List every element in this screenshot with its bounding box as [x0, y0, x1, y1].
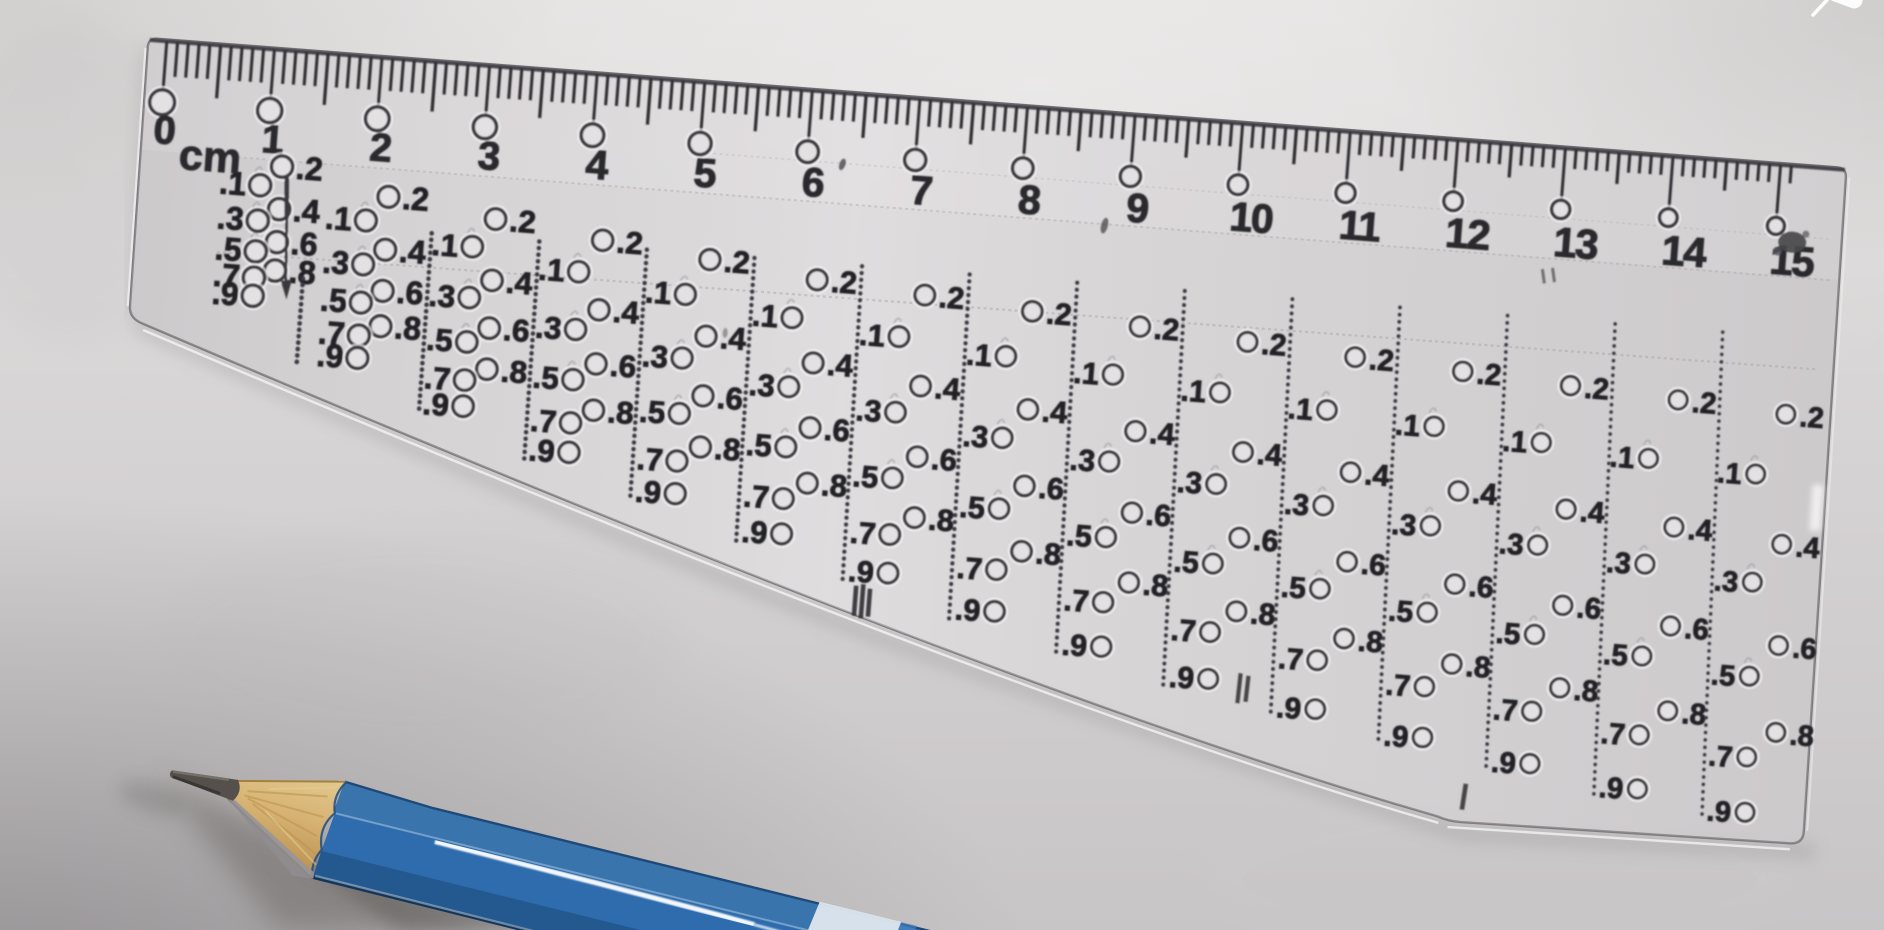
svg-text:.9: .9 — [315, 337, 344, 375]
svg-text:.5: .5 — [1280, 571, 1307, 606]
svg-text:7: 7 — [908, 167, 933, 214]
svg-text:.1: .1 — [1180, 374, 1208, 409]
svg-text:.1: .1 — [537, 251, 566, 289]
svg-text:.5: .5 — [745, 427, 774, 464]
svg-text:.6: .6 — [716, 380, 745, 417]
svg-text:.3: .3 — [428, 277, 457, 315]
svg-text:.7: .7 — [1170, 614, 1198, 649]
svg-text:.5: .5 — [1602, 638, 1629, 673]
svg-text:.9: .9 — [211, 275, 241, 313]
svg-text:.9: .9 — [1168, 661, 1196, 696]
svg-text:.2: .2 — [615, 223, 644, 261]
svg-text:.3: .3 — [534, 308, 563, 346]
svg-text:.4: .4 — [1686, 513, 1714, 548]
svg-text:.4: .4 — [1471, 477, 1499, 512]
svg-text:13: 13 — [1552, 218, 1599, 268]
svg-text:.8: .8 — [393, 309, 422, 347]
svg-text:.3: .3 — [1283, 488, 1310, 523]
svg-text:.6: .6 — [1145, 498, 1173, 534]
svg-text:.6: .6 — [823, 412, 852, 449]
svg-text:.4: .4 — [933, 370, 962, 407]
svg-text:.3: .3 — [1390, 508, 1417, 543]
svg-text:.5: .5 — [1387, 594, 1414, 629]
svg-text:.1: .1 — [431, 226, 460, 264]
svg-text:14: 14 — [1660, 226, 1709, 276]
svg-text:.6: .6 — [609, 347, 638, 385]
svg-text:.1: .1 — [324, 199, 353, 237]
svg-text:3: 3 — [476, 134, 500, 179]
svg-text:.7: .7 — [1492, 693, 1519, 728]
svg-text:.1: .1 — [1394, 408, 1421, 443]
svg-text:9: 9 — [1125, 184, 1150, 232]
svg-text:.4: .4 — [1040, 394, 1068, 431]
svg-text:.8: .8 — [1464, 650, 1491, 685]
svg-text:.8: .8 — [1034, 535, 1062, 572]
svg-text:.6: .6 — [930, 441, 958, 478]
svg-text:.2: .2 — [1798, 401, 1825, 435]
svg-text:10: 10 — [1228, 193, 1275, 242]
svg-text:.5: .5 — [425, 321, 454, 359]
svg-text:.4: .4 — [612, 293, 641, 331]
svg-text:.9: .9 — [1598, 771, 1625, 806]
svg-text:.4: .4 — [1363, 458, 1391, 493]
svg-text:.9: .9 — [1061, 628, 1089, 664]
svg-text:.8: .8 — [499, 352, 528, 390]
svg-text:0: 0 — [152, 108, 176, 153]
svg-text:.3: .3 — [1068, 443, 1096, 479]
svg-text:.7: .7 — [849, 515, 877, 552]
svg-text:.7: .7 — [1277, 642, 1304, 677]
svg-text:.6: .6 — [395, 274, 424, 312]
svg-text:.4: .4 — [719, 320, 748, 357]
svg-text:.8: .8 — [1141, 568, 1169, 604]
svg-text:.6: .6 — [1360, 548, 1387, 583]
svg-text:.1: .1 — [1716, 457, 1743, 491]
svg-text:.9: .9 — [1382, 719, 1409, 754]
svg-text:.2: .2 — [1583, 372, 1610, 407]
svg-text:.4: .4 — [398, 233, 428, 271]
svg-text:.6: .6 — [1037, 470, 1065, 507]
svg-text:.2: .2 — [1691, 386, 1718, 421]
svg-text:.1: .1 — [644, 274, 673, 311]
svg-text:.8: .8 — [1680, 697, 1707, 732]
svg-text:.3: .3 — [748, 367, 777, 404]
svg-text:.9: .9 — [1706, 795, 1733, 829]
svg-text:.4: .4 — [1148, 416, 1176, 452]
svg-text:.6: .6 — [1683, 612, 1710, 647]
svg-text:.4: .4 — [292, 192, 322, 230]
svg-text:.9: .9 — [740, 514, 769, 551]
svg-text:.2: .2 — [723, 244, 752, 281]
svg-text:.5: .5 — [1495, 617, 1522, 652]
svg-text:.3: .3 — [321, 243, 350, 281]
svg-text:.3: .3 — [1498, 527, 1525, 562]
svg-text:.7: .7 — [1707, 740, 1734, 774]
svg-text:.8: .8 — [713, 431, 742, 468]
svg-text:.6: .6 — [1252, 524, 1280, 559]
svg-text:.2: .2 — [401, 180, 430, 218]
svg-text:.2: .2 — [508, 202, 537, 240]
svg-text:.1: .1 — [858, 317, 886, 354]
svg-text:.9: .9 — [421, 385, 450, 423]
svg-text:.8: .8 — [1788, 719, 1815, 753]
svg-text:.2: .2 — [937, 279, 965, 316]
svg-text:.1: .1 — [1287, 392, 1314, 427]
svg-text:.8: .8 — [1249, 597, 1277, 632]
svg-text:.6: .6 — [1575, 591, 1602, 626]
svg-text:.2: .2 — [1368, 343, 1395, 378]
svg-text:.2: .2 — [1045, 295, 1073, 332]
svg-text:.8: .8 — [927, 502, 955, 539]
svg-text:.5: .5 — [638, 393, 667, 430]
svg-text:.8: .8 — [1572, 674, 1599, 709]
svg-text:.5: .5 — [1710, 659, 1737, 693]
svg-text:.9: .9 — [634, 474, 663, 511]
svg-text:.4: .4 — [1794, 531, 1821, 565]
svg-text:.5: .5 — [851, 458, 879, 495]
svg-text:.1: .1 — [1609, 441, 1636, 476]
svg-text:.4: .4 — [1579, 495, 1607, 530]
svg-text:.7: .7 — [635, 441, 664, 478]
svg-text:.5: .5 — [531, 359, 560, 397]
svg-text:.1: .1 — [1072, 356, 1100, 392]
svg-text:.8: .8 — [820, 467, 849, 504]
svg-text:.2: .2 — [1153, 312, 1181, 348]
svg-text:.8: .8 — [606, 393, 635, 431]
svg-text:.7: .7 — [956, 550, 984, 587]
svg-text:.4: .4 — [505, 264, 535, 302]
svg-text:.1: .1 — [218, 164, 248, 202]
svg-text:11: 11 — [1337, 202, 1381, 251]
svg-text:5: 5 — [692, 149, 717, 197]
svg-text:.3: .3 — [1605, 546, 1632, 581]
svg-text:.1: .1 — [965, 336, 993, 373]
svg-text:.7: .7 — [1599, 717, 1626, 752]
svg-text:.7: .7 — [1384, 669, 1411, 704]
svg-text:6: 6 — [800, 158, 825, 206]
svg-text:.2: .2 — [830, 264, 859, 301]
svg-text:.2: .2 — [295, 150, 325, 188]
svg-text:.4: .4 — [1256, 438, 1284, 473]
svg-text:.6: .6 — [1467, 570, 1494, 605]
svg-text:.9: .9 — [1490, 746, 1517, 781]
svg-text:.5: .5 — [958, 489, 986, 526]
svg-text:.6: .6 — [502, 311, 531, 349]
svg-text:.9: .9 — [527, 431, 556, 469]
svg-text:.3: .3 — [854, 392, 882, 429]
svg-text:.3: .3 — [961, 418, 989, 455]
svg-text:.3: .3 — [1176, 466, 1204, 501]
svg-text:12: 12 — [1444, 209, 1491, 259]
svg-text:.4: .4 — [826, 347, 855, 384]
svg-text:.1: .1 — [751, 298, 780, 335]
svg-text:.7: .7 — [742, 479, 771, 516]
svg-text:.3: .3 — [641, 338, 670, 375]
svg-text:.6: .6 — [1791, 633, 1818, 667]
svg-text:8: 8 — [1016, 176, 1041, 224]
svg-text:.8: .8 — [1357, 625, 1384, 660]
svg-text:.1: .1 — [1501, 425, 1528, 460]
svg-text:2: 2 — [368, 125, 392, 170]
svg-text:.2: .2 — [1260, 328, 1288, 363]
svg-text:.5: .5 — [1172, 546, 1200, 581]
svg-text:.9: .9 — [1275, 691, 1302, 726]
svg-text:.9: .9 — [954, 591, 982, 628]
svg-text:.5: .5 — [1065, 518, 1093, 554]
svg-text:.2: .2 — [1475, 357, 1502, 392]
svg-text:.7: .7 — [1062, 583, 1090, 619]
svg-text:.3: .3 — [1713, 565, 1740, 599]
